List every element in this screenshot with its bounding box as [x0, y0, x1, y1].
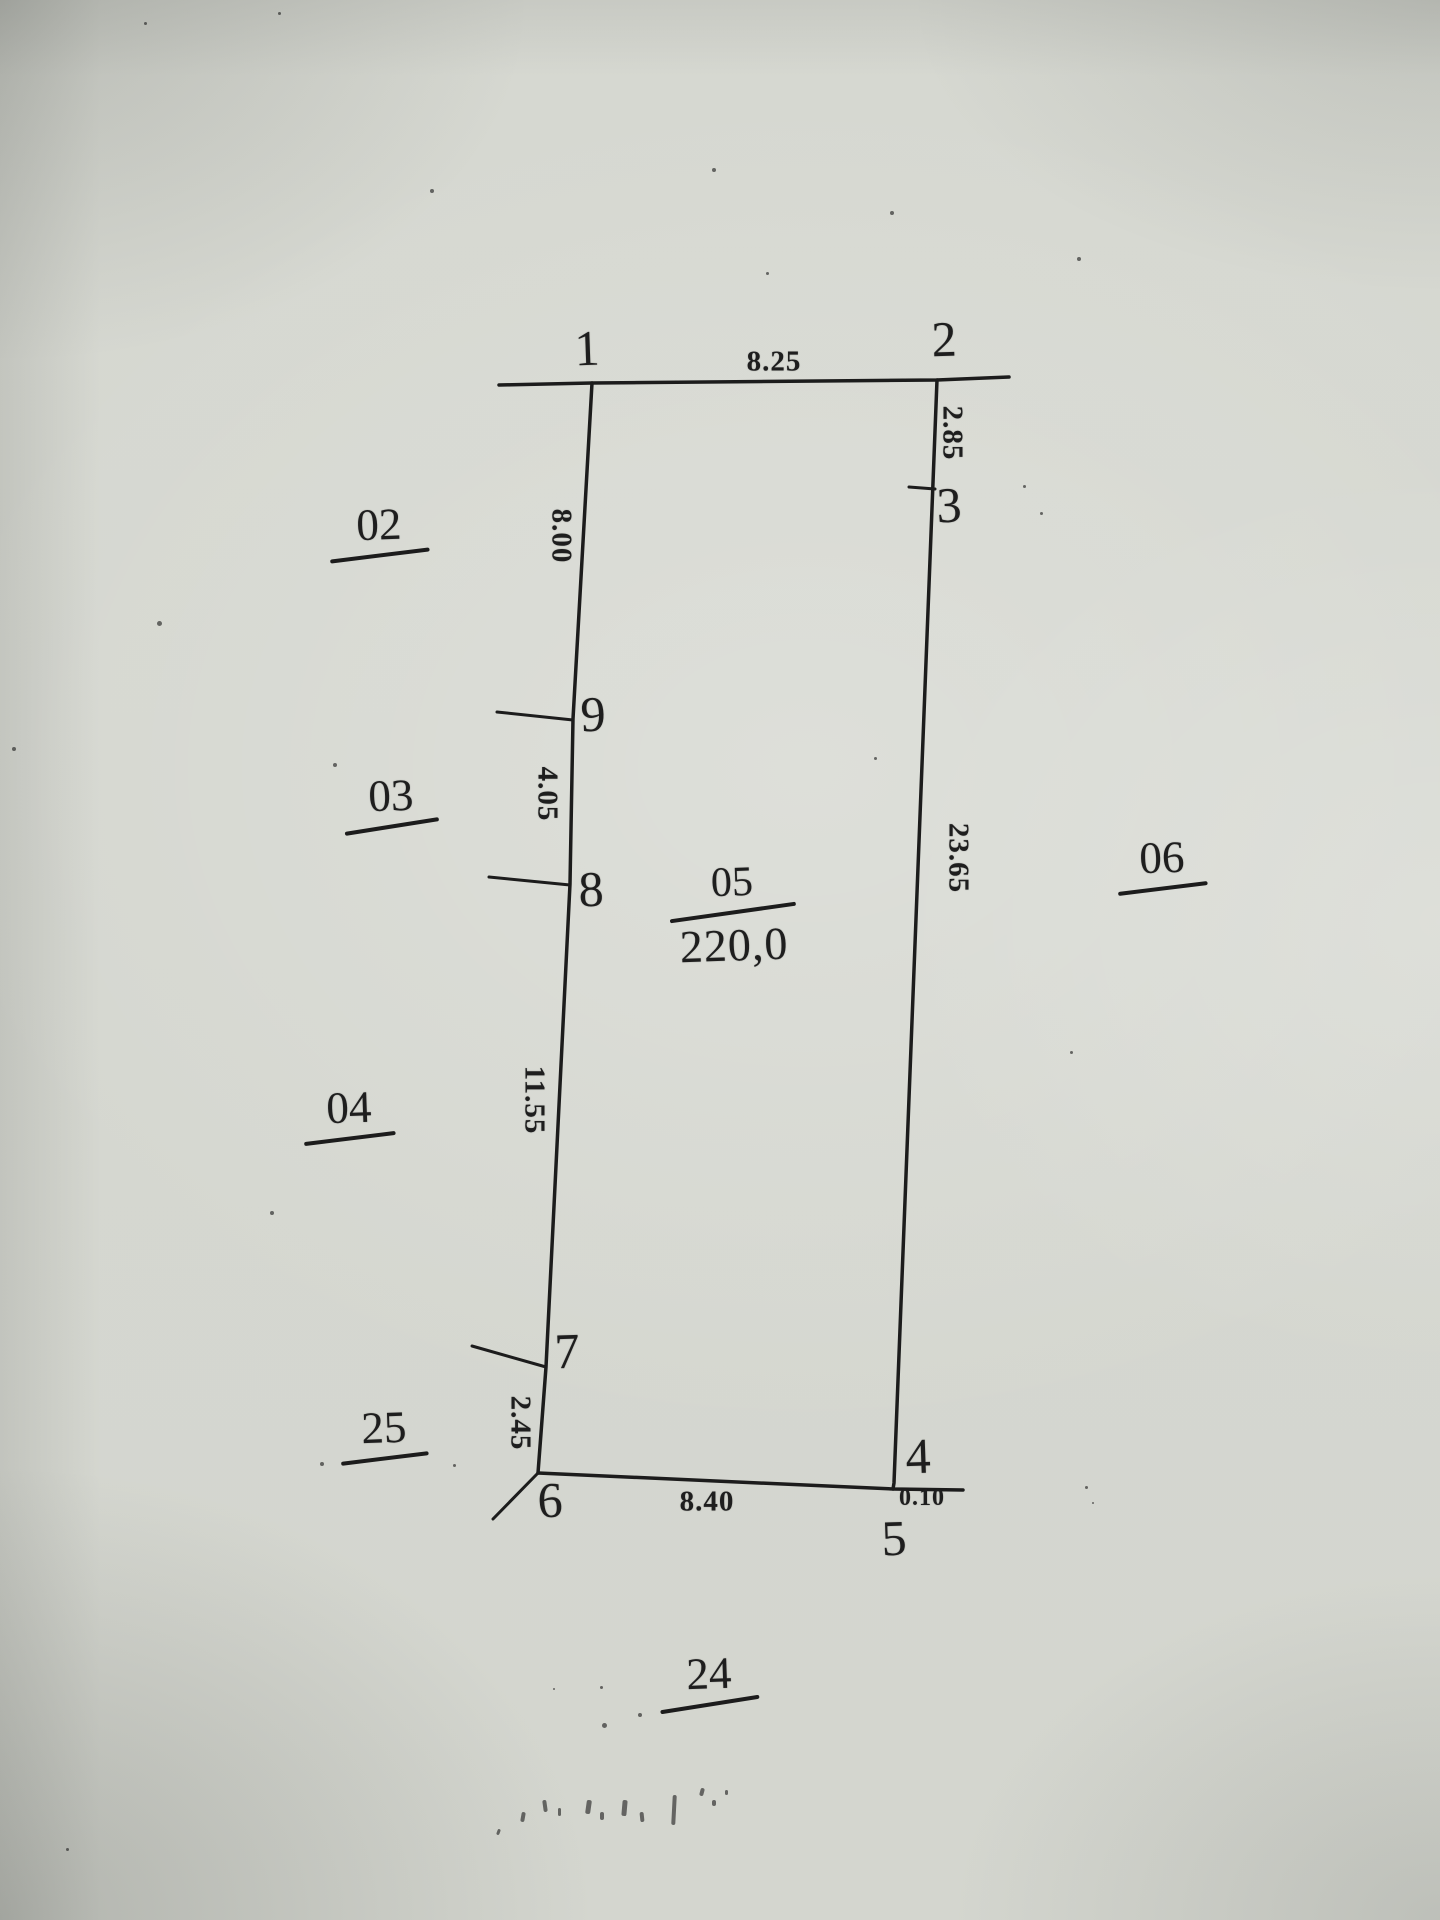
dimension-right-upper-edge: 2.85	[938, 406, 967, 461]
neighbor-parcel-upper-left: 02	[328, 501, 430, 559]
parcel-number: 05	[710, 861, 753, 904]
neighbor-parcel-bottom-left: 25	[339, 1404, 429, 1462]
tick-vertex-6	[493, 1473, 538, 1519]
neighbor-parcel-number: 25	[361, 1405, 408, 1452]
dimension-bottom-edge: 8.40	[680, 1488, 735, 1517]
dimension-left-upper-edge: 8.00	[547, 509, 576, 564]
edge-top-line	[499, 377, 1009, 385]
neighbor-parcel-left: 03	[343, 772, 440, 830]
vertex-label-3: 3	[936, 480, 963, 531]
vertex-label-2: 2	[931, 314, 958, 365]
dimension-top-edge: 8.25	[747, 348, 802, 377]
neighbor-parcel-lower-left: 04	[302, 1084, 396, 1142]
parcel-id-and-area: 05 220,0	[668, 859, 799, 970]
vertex-label-4: 4	[905, 1431, 932, 1482]
vertex-label-5: 5	[881, 1513, 908, 1564]
neighbor-parcel-below: 24	[658, 1650, 760, 1708]
neighbor-parcel-number: 03	[368, 773, 415, 820]
vertex-label-7: 7	[554, 1326, 581, 1377]
dimension-bottom-corner: 0.10	[899, 1486, 945, 1510]
tick-vertex-7	[472, 1346, 546, 1367]
neighbor-parcel-right: 06	[1116, 834, 1208, 892]
vertex-label-1: 1	[574, 323, 601, 374]
survey-sketch-sheet: 1 2 3 4 5 6 7 8 9 8.25 2.85 23.65 8.40 0…	[0, 0, 1440, 1920]
tick-vertex-8	[489, 877, 570, 885]
neighbor-parcel-number: 02	[356, 502, 403, 549]
parcel-area: 220,0	[679, 921, 789, 971]
edge-right-line	[893, 380, 937, 1489]
neighbor-parcel-number: 04	[326, 1085, 373, 1132]
dimension-left-third-edge: 11.55	[520, 1066, 549, 1135]
tick-vertex-9	[497, 712, 573, 720]
vertex-label-9: 9	[580, 689, 607, 740]
vertex-label-8: 8	[578, 864, 605, 915]
vertex-label-6: 6	[537, 1475, 564, 1526]
neighbor-parcel-number: 06	[1139, 835, 1186, 882]
tick-vertex-3	[909, 487, 935, 489]
dimension-right-main-edge: 23.65	[944, 823, 973, 893]
neighbor-parcel-number: 24	[686, 1651, 733, 1698]
dimension-left-second-edge: 4.05	[533, 767, 562, 822]
scanned-survey-photo: 1 2 3 4 5 6 7 8 9 8.25 2.85 23.65 8.40 0…	[0, 0, 1440, 1920]
dimension-left-bottom-edge: 2.45	[506, 1396, 535, 1451]
